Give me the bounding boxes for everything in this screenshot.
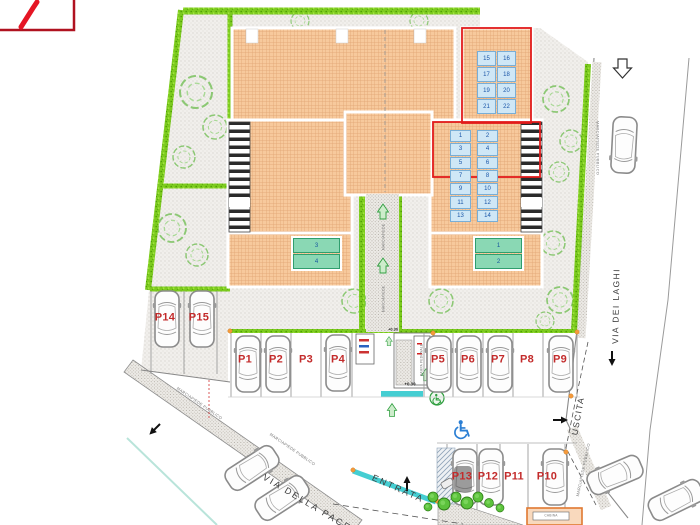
unit-cell: 4	[477, 143, 498, 155]
curb-line	[127, 438, 217, 525]
sidewalk-arrow-icon	[147, 422, 163, 438]
unit-grid-middle-right: 2 4 6 8 10 12 14	[477, 130, 498, 222]
parking-label-p14: P14	[155, 313, 175, 324]
site-plan: 15 16 17 18 19 20 21 22 1 3 5 7 9 11 13 …	[0, 0, 700, 525]
level-label: +0.30	[388, 328, 398, 332]
patio-cell: 2	[475, 254, 522, 269]
unit-cell: 2	[477, 130, 498, 142]
outline-arrow-icon	[614, 59, 632, 78]
parking-label-p13: P13	[452, 472, 472, 483]
unit-cell: 17	[477, 67, 496, 82]
unit-cell: 5	[450, 157, 471, 169]
parking-label-p1: P1	[238, 355, 252, 366]
patio-cell: 4	[293, 254, 340, 269]
walkway-label: MARCIAPIEDE	[382, 286, 386, 313]
ramp-label: RAMPA PEDONALE	[420, 344, 423, 377]
parking-label-p9: P9	[553, 355, 567, 366]
parking-label-p4: P4	[331, 355, 345, 366]
parking-label-p5: P5	[431, 355, 445, 366]
unit-cell: 20	[497, 83, 516, 98]
cabin-label: CABINA	[544, 514, 557, 517]
parking-label-p12: P12	[478, 472, 498, 483]
unit-cell: 21	[477, 99, 496, 114]
unit-grid-top-right: 15 16 17 18 19 20 21 22	[477, 51, 516, 114]
unit-cell: 6	[477, 157, 498, 169]
unit-cell: 12	[477, 196, 498, 208]
unit-cell: 16	[497, 51, 516, 66]
logo	[0, 0, 74, 30]
patio-cell: 3	[293, 238, 340, 253]
unit-cell: 7	[450, 170, 471, 182]
parking-label-p15: P15	[189, 313, 209, 324]
parking-label-p10: P10	[537, 472, 557, 483]
unit-cell: 11	[450, 196, 471, 208]
unit-cell: 19	[477, 83, 496, 98]
patio-grid-left: 3 4	[293, 238, 340, 269]
unit-cell: 22	[497, 99, 516, 114]
parking-label-p7: P7	[491, 355, 505, 366]
parking-label-p11: P11	[504, 472, 524, 483]
unit-cell: 9	[450, 183, 471, 195]
unit-cell: 3	[450, 143, 471, 155]
parking-label-p3: P3	[299, 355, 313, 366]
unit-cell: 10	[477, 183, 498, 195]
unit-cell: 14	[477, 210, 498, 222]
unit-cell: 15	[477, 51, 496, 66]
level-label: +0.30	[404, 383, 415, 387]
unit-cell: 18	[497, 67, 516, 82]
sidewalk-label: MARCIAPIEDE PUBBLICO	[595, 121, 599, 175]
street-arrow-icon	[609, 351, 616, 366]
parking-label-p6: P6	[461, 355, 475, 366]
unit-grid-middle-left: 1 3 5 7 9 11 13	[450, 130, 471, 222]
unit-cell: 1	[450, 130, 471, 142]
site-plan-drawing	[0, 0, 700, 525]
handicap-icon	[455, 420, 469, 438]
parking-label-p8: P8	[520, 355, 534, 366]
unit-cell: 13	[450, 210, 471, 222]
street-label-via-dei-laghi: VIA DEI LAGHI	[611, 268, 621, 344]
walkway-label: MARCIAPIEDE	[382, 224, 386, 251]
patio-cell: 1	[475, 238, 522, 253]
unit-cell: 8	[477, 170, 498, 182]
patio-grid-right: 1 2	[475, 238, 522, 269]
parking-label-p2: P2	[269, 355, 283, 366]
